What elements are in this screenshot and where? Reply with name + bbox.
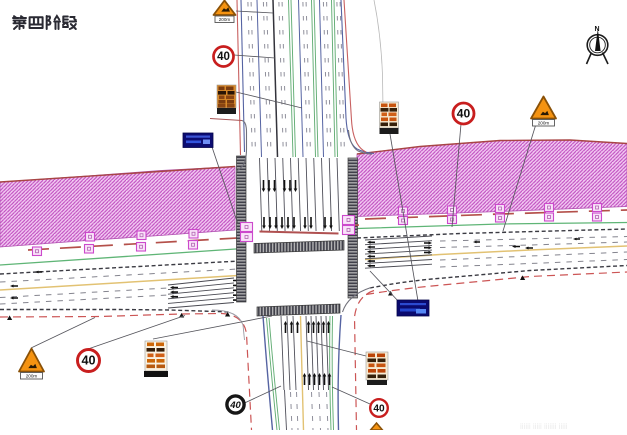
svg-text:200m: 200m <box>538 121 550 126</box>
svg-text:iiiiii iiiii iiiiiii iiiii: iiiiii iiiii iiiiiii iiiii <box>520 422 568 430</box>
svg-text:200m: 200m <box>219 17 231 22</box>
svg-text:200m: 200m <box>26 374 38 379</box>
svg-text:40: 40 <box>81 354 95 368</box>
svg-text:N: N <box>594 26 599 33</box>
svg-text:40: 40 <box>373 403 385 414</box>
svg-text:40: 40 <box>217 51 230 63</box>
svg-text:40: 40 <box>229 400 241 411</box>
svg-text:40: 40 <box>457 106 471 120</box>
